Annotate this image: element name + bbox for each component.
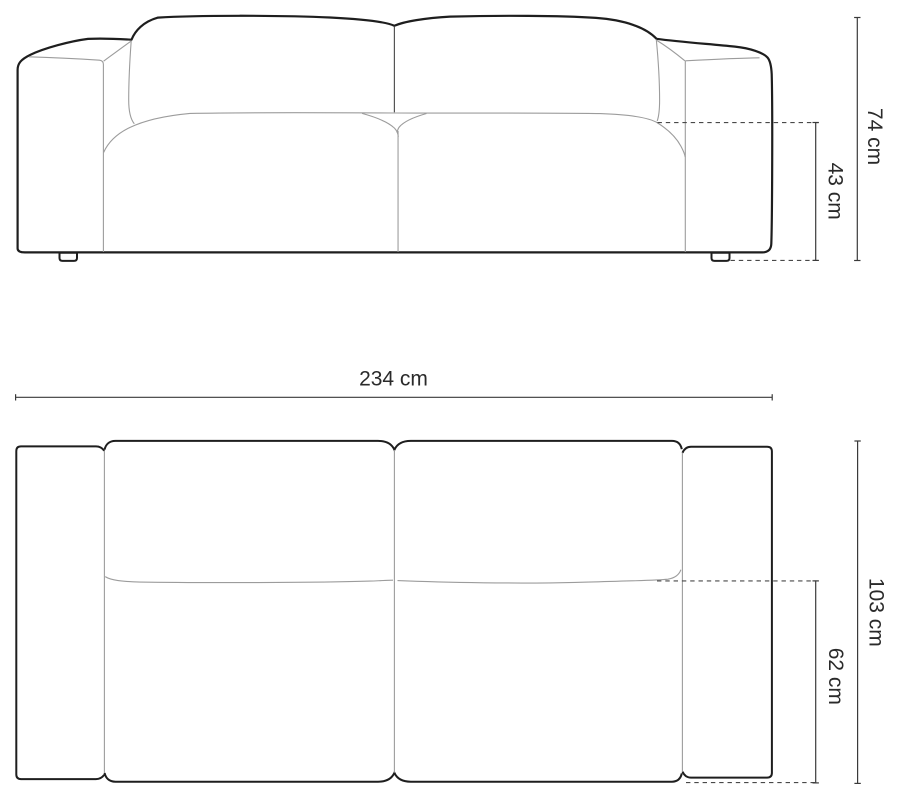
svg-text:103 cm: 103 cm xyxy=(865,578,888,647)
svg-text:43 cm: 43 cm xyxy=(823,163,846,220)
svg-text:62 cm: 62 cm xyxy=(824,648,847,705)
svg-text:234 cm: 234 cm xyxy=(359,368,428,391)
svg-text:74 cm: 74 cm xyxy=(863,108,886,165)
